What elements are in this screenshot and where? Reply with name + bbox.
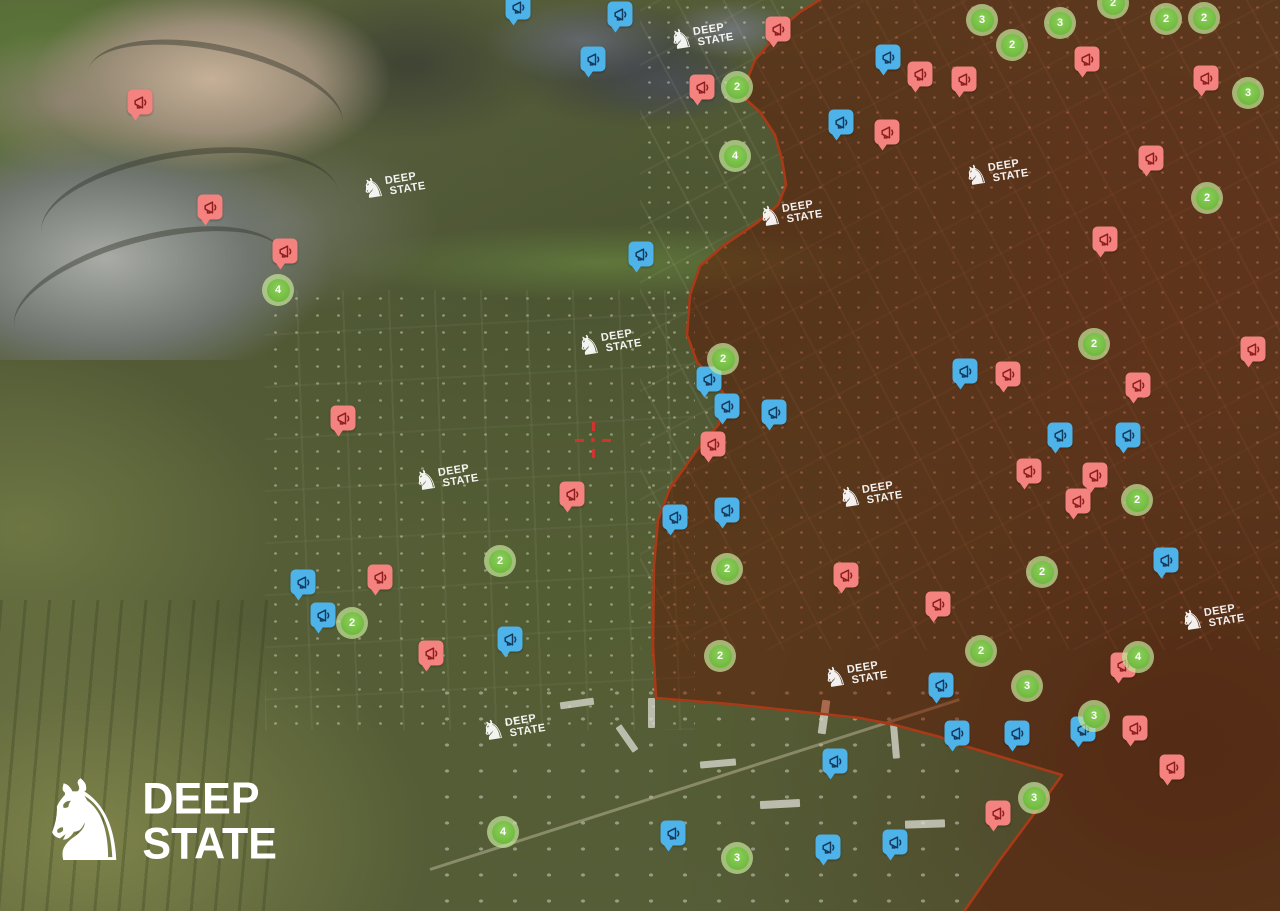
- megaphone-icon: [694, 79, 710, 95]
- megaphone-icon: [1097, 231, 1113, 247]
- cluster-count: 2: [726, 76, 749, 99]
- report-marker-blue[interactable]: [629, 242, 654, 267]
- cluster-count: 2: [1083, 333, 1106, 356]
- cluster-count: 2: [709, 645, 732, 668]
- report-marker-blue[interactable]: [1116, 423, 1141, 448]
- megaphone-icon: [770, 21, 786, 37]
- cluster-marker[interactable]: 3: [966, 4, 998, 36]
- cluster-marker[interactable]: 2: [965, 635, 997, 667]
- report-marker-pink[interactable]: [128, 90, 153, 115]
- chess-knight-icon: ♞: [667, 28, 694, 53]
- logo-text-line2: STATE: [142, 822, 277, 867]
- chess-knight-icon: ♞: [575, 334, 602, 359]
- megaphone-icon: [957, 363, 973, 379]
- cluster-marker[interactable]: 3: [1078, 700, 1110, 732]
- report-marker-pink[interactable]: [834, 563, 859, 588]
- megaphone-icon: [1087, 467, 1103, 483]
- megaphone-icon: [827, 753, 843, 769]
- report-marker-blue[interactable]: [498, 627, 523, 652]
- cluster-count: 4: [492, 821, 515, 844]
- report-marker-blue[interactable]: [608, 2, 633, 27]
- chess-knight-icon: ♞: [962, 164, 989, 189]
- megaphone-icon: [1164, 759, 1180, 775]
- cluster-count: 2: [1155, 8, 1178, 31]
- megaphone-icon: [510, 0, 526, 15]
- megaphone-icon: [880, 49, 896, 65]
- megaphone-icon: [423, 645, 439, 661]
- report-marker-blue[interactable]: [291, 570, 316, 595]
- megaphone-icon: [1143, 150, 1159, 166]
- cluster-count: 2: [1001, 34, 1024, 57]
- report-marker-pink[interactable]: [419, 641, 444, 666]
- megaphone-icon: [633, 246, 649, 262]
- report-marker-pink[interactable]: [1241, 337, 1266, 362]
- megaphone-icon: [1130, 377, 1146, 393]
- report-marker-pink[interactable]: [996, 362, 1021, 387]
- report-marker-pink[interactable]: [1083, 463, 1108, 488]
- cluster-count: 3: [1016, 675, 1039, 698]
- cluster-marker[interactable]: 3: [1011, 670, 1043, 702]
- report-marker-blue[interactable]: [945, 721, 970, 746]
- megaphone-icon: [719, 502, 735, 518]
- cluster-count: 4: [1127, 646, 1150, 669]
- chess-knight-icon: ♞: [756, 205, 783, 230]
- cluster-marker[interactable]: 3: [1232, 77, 1264, 109]
- megaphone-icon: [502, 631, 518, 647]
- chess-knight-icon: ♞: [412, 469, 439, 494]
- deepstate-map-viewport[interactable]: ♞ DEEP STATE ♞ DEEP STATE ♞ DEEP STATE ♞…: [0, 0, 1280, 911]
- cluster-marker[interactable]: 3: [1018, 782, 1050, 814]
- cluster-marker[interactable]: 4: [719, 140, 751, 172]
- report-marker-blue[interactable]: [663, 505, 688, 530]
- report-marker-pink[interactable]: [1017, 459, 1042, 484]
- cluster-count: 3: [1023, 787, 1046, 810]
- chess-knight-icon: ♞: [479, 719, 506, 744]
- cluster-count: 4: [724, 145, 747, 168]
- megaphone-icon: [202, 199, 218, 215]
- report-marker-pink[interactable]: [908, 62, 933, 87]
- cluster-count: 2: [970, 640, 993, 663]
- report-marker-blue[interactable]: [581, 47, 606, 72]
- cluster-count: 3: [1237, 82, 1260, 105]
- megaphone-icon: [838, 567, 854, 583]
- cluster-marker[interactable]: 4: [262, 274, 294, 306]
- cluster-marker[interactable]: 3: [721, 842, 753, 874]
- megaphone-icon: [585, 51, 601, 67]
- report-marker-blue[interactable]: [311, 603, 336, 628]
- cluster-count: 3: [1049, 12, 1072, 35]
- report-marker-pink[interactable]: [926, 592, 951, 617]
- cluster-count: 2: [716, 558, 739, 581]
- megaphone-icon: [132, 94, 148, 110]
- chess-knight-icon: ♞: [821, 666, 848, 691]
- megaphone-icon: [1120, 427, 1136, 443]
- megaphone-icon: [372, 569, 388, 585]
- report-marker-pink[interactable]: [1160, 755, 1185, 780]
- report-marker-blue[interactable]: [823, 749, 848, 774]
- megaphone-icon: [1070, 493, 1086, 509]
- cluster-count: 3: [1083, 705, 1106, 728]
- report-marker-pink[interactable]: [875, 120, 900, 145]
- report-marker-blue[interactable]: [816, 835, 841, 860]
- cluster-marker[interactable]: 2: [711, 553, 743, 585]
- cluster-marker[interactable]: 4: [487, 816, 519, 848]
- report-marker-blue[interactable]: [876, 45, 901, 70]
- megaphone-icon: [667, 509, 683, 525]
- megaphone-icon: [1009, 725, 1025, 741]
- chess-knight-icon: ♞: [836, 486, 863, 511]
- report-marker-blue[interactable]: [1154, 548, 1179, 573]
- megaphone-icon: [295, 574, 311, 590]
- report-marker-blue[interactable]: [1048, 423, 1073, 448]
- chess-knight-icon: ♞: [359, 177, 386, 202]
- report-marker-blue[interactable]: [506, 0, 531, 20]
- megaphone-icon: [766, 404, 782, 420]
- report-marker-blue[interactable]: [1005, 721, 1030, 746]
- report-marker-pink[interactable]: [1139, 146, 1164, 171]
- cluster-count: 2: [1193, 7, 1216, 30]
- megaphone-icon: [1127, 720, 1143, 736]
- megaphone-icon: [564, 486, 580, 502]
- cluster-marker[interactable]: 2: [1078, 328, 1110, 360]
- report-marker-pink[interactable]: [701, 432, 726, 457]
- cluster-count: 3: [726, 847, 749, 870]
- cluster-marker[interactable]: 2: [707, 343, 739, 375]
- cluster-count: 4: [267, 279, 290, 302]
- report-marker-pink[interactable]: [1194, 66, 1219, 91]
- megaphone-icon: [820, 839, 836, 855]
- report-marker-pink[interactable]: [1066, 489, 1091, 514]
- megaphone-icon: [912, 66, 928, 82]
- report-marker-blue[interactable]: [929, 673, 954, 698]
- cluster-count: 2: [1031, 561, 1054, 584]
- megaphone-icon: [612, 6, 628, 22]
- megaphone-icon: [1158, 552, 1174, 568]
- report-marker-blue[interactable]: [762, 400, 787, 425]
- report-marker-pink[interactable]: [273, 239, 298, 264]
- report-marker-pink[interactable]: [690, 75, 715, 100]
- report-marker-pink[interactable]: [1093, 227, 1118, 252]
- report-marker-pink[interactable]: [331, 406, 356, 431]
- cluster-marker[interactable]: 3: [1044, 7, 1076, 39]
- megaphone-icon: [887, 834, 903, 850]
- megaphone-icon: [1245, 341, 1261, 357]
- cluster-count: 2: [1102, 0, 1125, 15]
- report-marker-blue[interactable]: [715, 498, 740, 523]
- report-marker-blue[interactable]: [715, 394, 740, 419]
- cluster-marker[interactable]: 4: [1122, 641, 1154, 673]
- logo-text-line1: DEEP: [142, 777, 277, 822]
- megaphone-icon: [719, 398, 735, 414]
- occupied-territory-tint: [653, 0, 1280, 911]
- megaphone-icon: [1079, 51, 1095, 67]
- cluster-count: 2: [1126, 489, 1149, 512]
- cluster-marker[interactable]: 2: [1121, 484, 1153, 516]
- cluster-marker[interactable]: 2: [704, 640, 736, 672]
- report-marker-pink[interactable]: [952, 67, 977, 92]
- megaphone-icon: [335, 410, 351, 426]
- crosshair-marker: [575, 422, 611, 458]
- megaphone-icon: [1052, 427, 1068, 443]
- megaphone-icon: [665, 825, 681, 841]
- megaphone-icon: [705, 436, 721, 452]
- cluster-marker[interactable]: 2: [1191, 182, 1223, 214]
- megaphone-icon: [956, 71, 972, 87]
- report-marker-pink[interactable]: [198, 195, 223, 220]
- megaphone-icon: [1021, 463, 1037, 479]
- report-marker-pink[interactable]: [766, 17, 791, 42]
- cluster-count: 2: [1196, 187, 1219, 210]
- megaphone-icon: [833, 114, 849, 130]
- megaphone-icon: [1198, 70, 1214, 86]
- cluster-marker[interactable]: 2: [1188, 2, 1220, 34]
- report-marker-blue[interactable]: [953, 359, 978, 384]
- cluster-marker[interactable]: 2: [484, 545, 516, 577]
- report-marker-pink[interactable]: [1075, 47, 1100, 72]
- cluster-marker[interactable]: 2: [1026, 556, 1058, 588]
- cluster-count: 2: [341, 612, 364, 635]
- report-marker-blue[interactable]: [829, 110, 854, 135]
- megaphone-icon: [930, 596, 946, 612]
- report-marker-pink[interactable]: [368, 565, 393, 590]
- megaphone-icon: [949, 725, 965, 741]
- cluster-count: 2: [712, 348, 735, 371]
- report-marker-blue[interactable]: [883, 830, 908, 855]
- megaphone-icon: [701, 371, 717, 387]
- megaphone-icon: [990, 805, 1006, 821]
- cluster-count: 2: [489, 550, 512, 573]
- report-marker-pink[interactable]: [1126, 373, 1151, 398]
- megaphone-icon: [315, 607, 331, 623]
- report-marker-pink[interactable]: [560, 482, 585, 507]
- megaphone-icon: [1000, 366, 1016, 382]
- deepstate-logo: ♞ DEEP STATE: [34, 776, 277, 868]
- chess-knight-icon: ♞: [34, 776, 134, 868]
- cluster-marker[interactable]: 2: [996, 29, 1028, 61]
- report-marker-pink[interactable]: [1123, 716, 1148, 741]
- cluster-count: 3: [971, 9, 994, 32]
- cluster-marker[interactable]: 2: [721, 71, 753, 103]
- megaphone-icon: [933, 677, 949, 693]
- report-marker-pink[interactable]: [986, 801, 1011, 826]
- cluster-marker[interactable]: 2: [1150, 3, 1182, 35]
- megaphone-icon: [277, 243, 293, 259]
- report-marker-blue[interactable]: [661, 821, 686, 846]
- cluster-marker[interactable]: 2: [336, 607, 368, 639]
- chess-knight-icon: ♞: [1178, 609, 1205, 634]
- megaphone-icon: [879, 124, 895, 140]
